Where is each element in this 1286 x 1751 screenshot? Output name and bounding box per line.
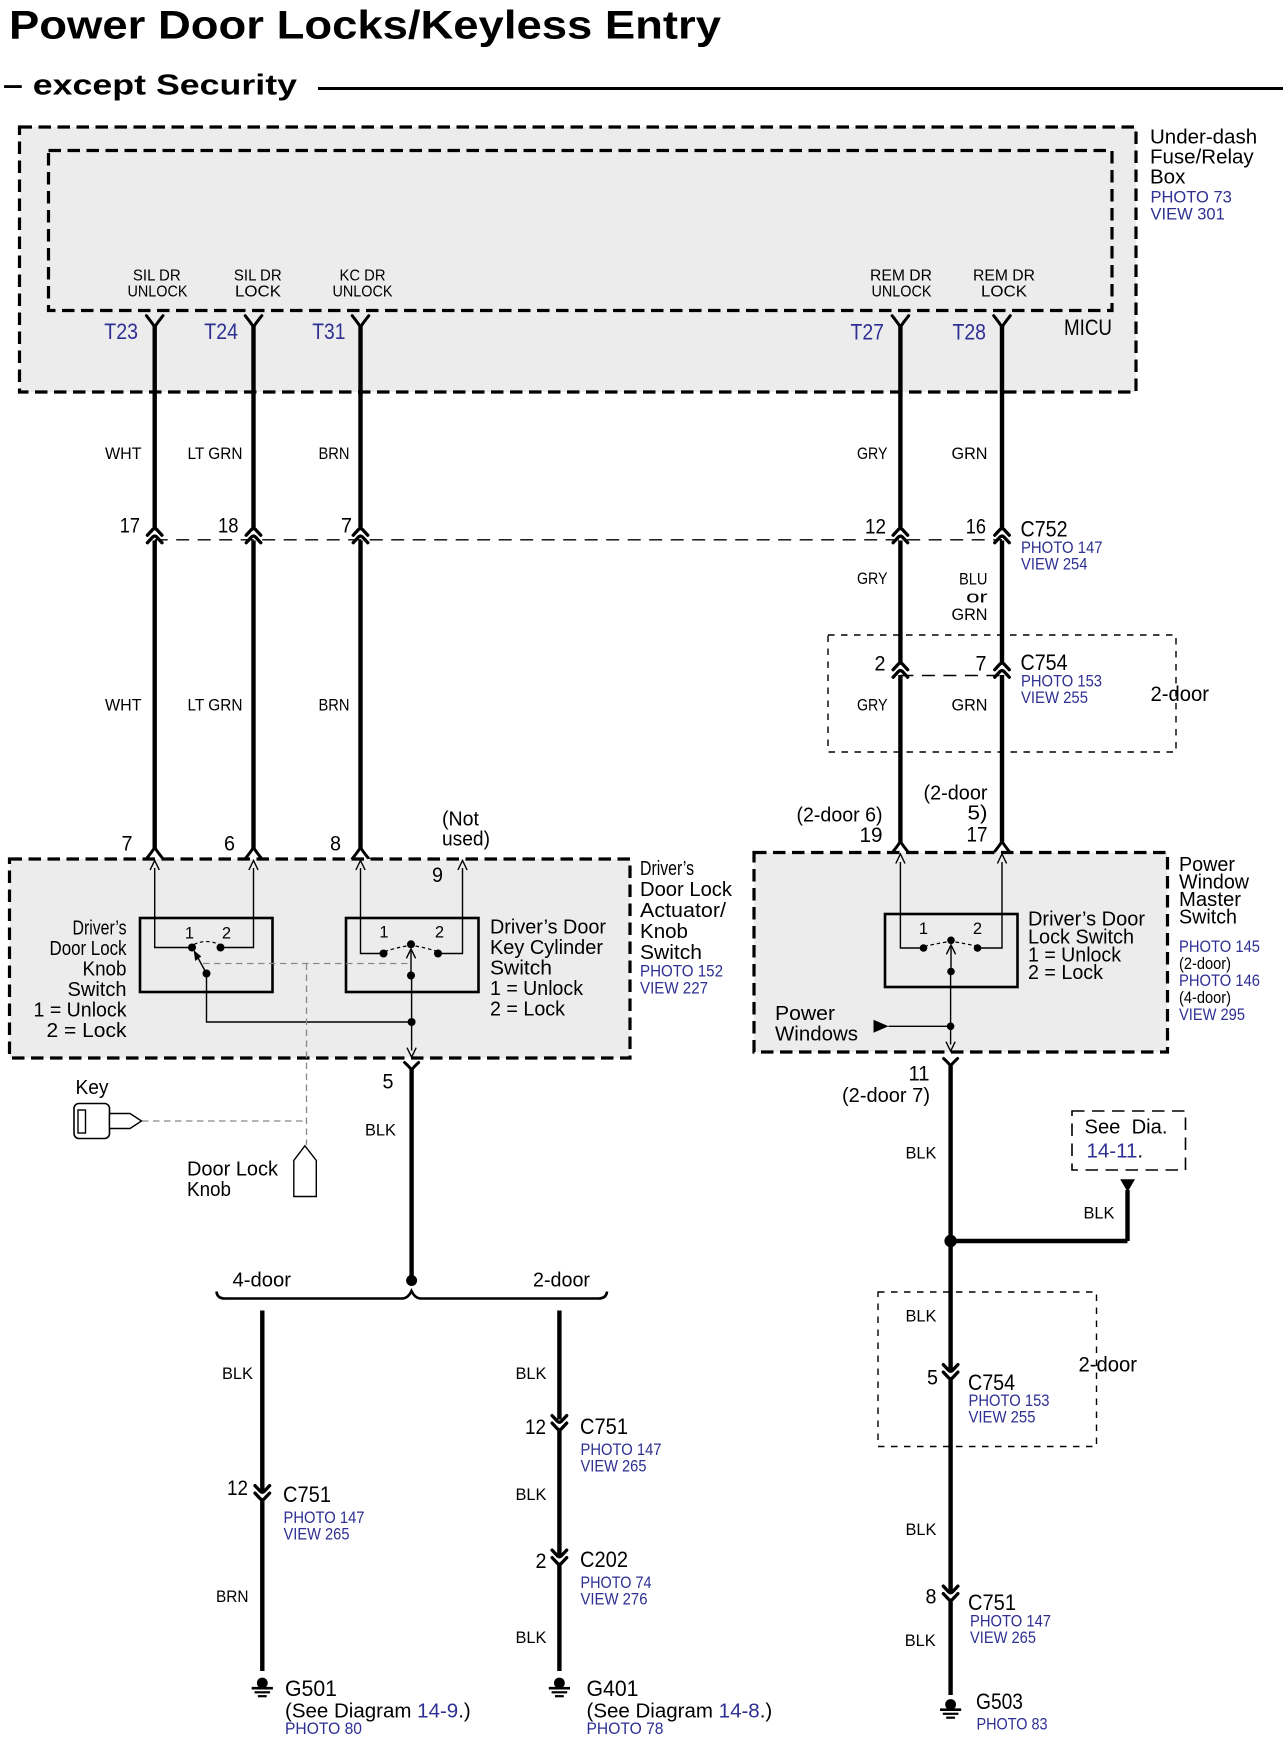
svg-text:PHOTO 153: PHOTO 153 <box>969 1392 1050 1410</box>
svg-text:Knob: Knob <box>187 1178 231 1201</box>
svg-text:Power Door Locks/Keyless Entry: Power Door Locks/Keyless Entry <box>9 4 722 48</box>
svg-text:12: 12 <box>525 1416 546 1439</box>
svg-text:C202: C202 <box>580 1547 628 1572</box>
svg-text:UNLOCK: UNLOCK <box>333 284 394 301</box>
svg-text:Knob: Knob <box>640 920 688 943</box>
svg-text:2 = Lock: 2 = Lock <box>1028 961 1104 984</box>
svg-text:17: 17 <box>120 515 140 538</box>
svg-text:5): 5) <box>968 802 988 825</box>
svg-text:MICU: MICU <box>1064 315 1112 340</box>
svg-text:BLK: BLK <box>365 1120 397 1139</box>
svg-text:BLK: BLK <box>905 1631 937 1650</box>
svg-text:VIEW 254: VIEW 254 <box>1021 556 1088 574</box>
svg-text:1: 1 <box>919 920 928 938</box>
svg-text:BLK: BLK <box>1084 1204 1116 1223</box>
svg-text:2-door: 2-door <box>533 1269 590 1292</box>
svg-text:BRN: BRN <box>216 1587 249 1606</box>
svg-text:BLK: BLK <box>516 1628 548 1647</box>
svg-text:Key: Key <box>76 1076 110 1099</box>
svg-text:C751: C751 <box>283 1482 331 1507</box>
svg-text:PHOTO 147: PHOTO 147 <box>970 1613 1051 1631</box>
svg-text:T23: T23 <box>104 319 138 344</box>
svg-text:LOCK: LOCK <box>235 284 282 301</box>
svg-text:VIEW 276: VIEW 276 <box>581 1591 648 1609</box>
svg-text:VIEW 265: VIEW 265 <box>581 1458 647 1476</box>
svg-text:2 = Lock: 2 = Lock <box>490 998 566 1021</box>
svg-text:LOCK: LOCK <box>981 284 1028 301</box>
svg-text:SIL DR: SIL DR <box>234 268 282 285</box>
svg-text:See Dia.: See Dia. <box>1085 1116 1168 1139</box>
svg-text:C752: C752 <box>1021 517 1068 542</box>
svg-text:14-11.: 14-11. <box>1087 1140 1144 1163</box>
svg-text:7: 7 <box>122 833 133 856</box>
svg-text:PHOTO 74: PHOTO 74 <box>581 1574 652 1592</box>
svg-text:PHOTO 78: PHOTO 78 <box>587 1720 664 1738</box>
svg-text:REM DR: REM DR <box>870 268 932 285</box>
svg-text:PHOTO 146: PHOTO 146 <box>1179 972 1260 990</box>
svg-text:PHOTO 147: PHOTO 147 <box>284 1509 365 1527</box>
svg-text:PHOTO 153: PHOTO 153 <box>1021 673 1102 691</box>
svg-text:17: 17 <box>967 824 988 847</box>
svg-text:C751: C751 <box>580 1414 628 1439</box>
svg-text:LT GRN: LT GRN <box>188 444 243 463</box>
svg-text:6: 6 <box>224 833 235 856</box>
svg-text:T24: T24 <box>204 319 238 344</box>
svg-text:VIEW 255: VIEW 255 <box>969 1409 1036 1427</box>
svg-text:WHT: WHT <box>105 444 142 463</box>
svg-text:G401: G401 <box>587 1676 639 1701</box>
svg-text:KC DR: KC DR <box>340 268 386 285</box>
svg-text:GRY: GRY <box>857 444 888 463</box>
svg-text:19: 19 <box>860 824 883 847</box>
svg-text:BLK: BLK <box>906 1144 938 1163</box>
svg-text:T28: T28 <box>953 320 987 345</box>
svg-text:Box: Box <box>1150 166 1186 189</box>
svg-text:VIEW 301: VIEW 301 <box>1151 206 1225 224</box>
svg-text:VIEW 295: VIEW 295 <box>1179 1006 1245 1024</box>
svg-text:2: 2 <box>875 653 886 676</box>
svg-text:BLK: BLK <box>906 1307 938 1326</box>
svg-text:12: 12 <box>227 1477 248 1500</box>
svg-text:(2-door 7): (2-door 7) <box>842 1084 930 1107</box>
svg-text:VIEW 265: VIEW 265 <box>284 1526 350 1544</box>
svg-text:2 = Lock: 2 = Lock <box>47 1019 128 1042</box>
svg-text:UNLOCK: UNLOCK <box>872 284 933 301</box>
svg-text:PHOTO 80: PHOTO 80 <box>285 1720 362 1738</box>
svg-text:Windows: Windows <box>775 1023 858 1046</box>
svg-text:GRY: GRY <box>857 569 888 588</box>
svg-text:1: 1 <box>379 924 388 942</box>
svg-text:UNLOCK: UNLOCK <box>128 284 189 301</box>
svg-text:BLK: BLK <box>222 1364 254 1383</box>
svg-text:Driver’s: Driver’s <box>640 857 694 880</box>
svg-text:T27: T27 <box>851 320 885 345</box>
svg-text:7: 7 <box>341 515 352 538</box>
svg-text:2: 2 <box>973 920 982 938</box>
svg-text:G501: G501 <box>285 1676 337 1701</box>
svg-text:used): used) <box>442 828 490 851</box>
svg-text:VIEW 227: VIEW 227 <box>640 980 708 998</box>
svg-text:GRN: GRN <box>952 696 988 715</box>
svg-text:8: 8 <box>926 1586 937 1609</box>
svg-text:– except Security: – except Security <box>3 70 297 102</box>
svg-text:BLK: BLK <box>516 1485 548 1504</box>
svg-text:4-door: 4-door <box>233 1269 292 1292</box>
svg-text:1: 1 <box>185 925 194 943</box>
svg-text:GRN: GRN <box>952 444 988 463</box>
svg-text:PHOTO 147: PHOTO 147 <box>1021 539 1103 557</box>
svg-text:REM DR: REM DR <box>973 268 1035 285</box>
svg-text:PHOTO 83: PHOTO 83 <box>977 1716 1048 1734</box>
svg-text:Switch: Switch <box>1179 906 1237 929</box>
svg-text:5: 5 <box>383 1071 394 1094</box>
svg-text:(2-door): (2-door) <box>1179 955 1231 973</box>
svg-text:or: or <box>966 588 988 607</box>
svg-text:BRN: BRN <box>319 696 350 715</box>
svg-text:BLK: BLK <box>516 1364 548 1383</box>
svg-text:BRN: BRN <box>319 444 350 463</box>
svg-text:2-door: 2-door <box>1151 683 1210 706</box>
svg-text:C751: C751 <box>968 1590 1016 1615</box>
svg-text:PHOTO 147: PHOTO 147 <box>581 1441 662 1459</box>
svg-text:18: 18 <box>218 515 239 538</box>
svg-text:7: 7 <box>976 653 987 676</box>
svg-text:T31: T31 <box>312 319 345 344</box>
svg-text:9: 9 <box>432 864 443 887</box>
svg-text:Switch: Switch <box>640 941 702 964</box>
svg-text:C754: C754 <box>1021 650 1068 675</box>
svg-text:11: 11 <box>909 1063 930 1086</box>
svg-text:VIEW 255: VIEW 255 <box>1021 689 1088 707</box>
svg-text:BLK: BLK <box>906 1520 938 1539</box>
svg-text:PHOTO 145: PHOTO 145 <box>1179 938 1260 956</box>
svg-text:Door Lock: Door Lock <box>640 878 733 901</box>
svg-text:Actuator/: Actuator/ <box>640 899 726 922</box>
svg-text:12: 12 <box>865 516 886 539</box>
svg-text:PHOTO 152: PHOTO 152 <box>640 963 723 981</box>
svg-text:GRY: GRY <box>857 696 888 715</box>
svg-text:16: 16 <box>966 516 986 539</box>
svg-text:LT GRN: LT GRN <box>188 696 243 715</box>
svg-text:G503: G503 <box>976 1689 1023 1714</box>
svg-text:2: 2 <box>222 925 231 943</box>
svg-text:WHT: WHT <box>105 696 142 715</box>
svg-text:5: 5 <box>927 1367 938 1390</box>
svg-text:2: 2 <box>435 924 444 942</box>
svg-text:BLU: BLU <box>959 570 988 589</box>
svg-text:GRN: GRN <box>952 605 988 624</box>
svg-text:2-door: 2-door <box>1079 1354 1138 1377</box>
svg-text:(4-door): (4-door) <box>1179 989 1231 1007</box>
svg-text:PHOTO 73: PHOTO 73 <box>1151 189 1232 207</box>
svg-text:2: 2 <box>536 1550 547 1573</box>
svg-text:8: 8 <box>330 833 341 856</box>
svg-text:SIL DR: SIL DR <box>133 268 181 285</box>
svg-text:VIEW 265: VIEW 265 <box>970 1629 1036 1647</box>
